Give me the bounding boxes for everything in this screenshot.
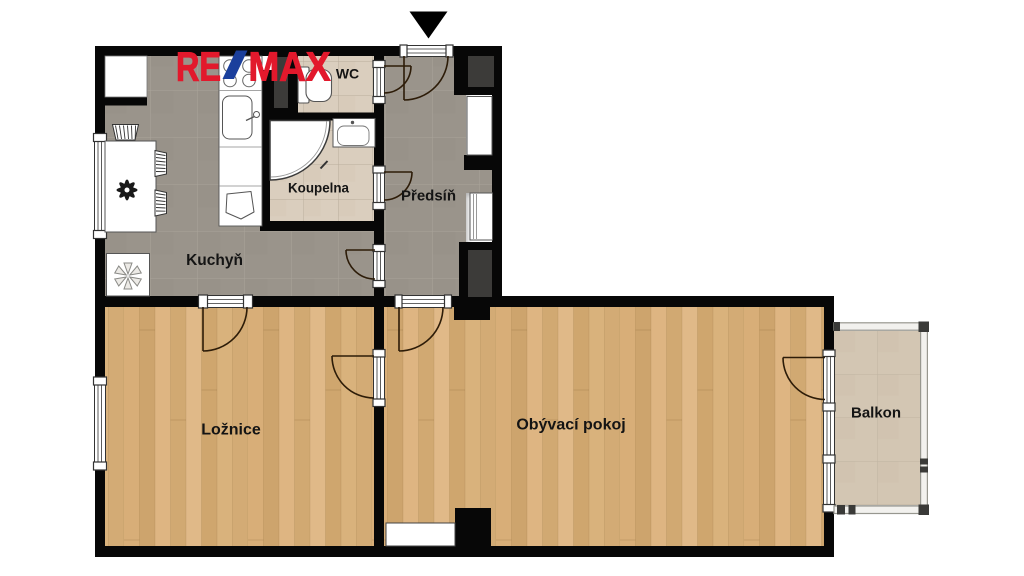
svg-text:Ložnice: Ložnice [201,422,261,439]
svg-text:WC: WC [336,66,359,82]
svg-text:Balkon: Balkon [851,405,901,422]
svg-text:Kuchyň: Kuchyň [186,252,243,269]
svg-text:MAX: MAX [249,43,331,89]
svg-text:RE: RE [176,43,221,89]
svg-text:Předsíň: Předsíň [401,188,456,205]
svg-text:Obývací pokoj: Obývací pokoj [516,417,625,434]
svg-text:Koupelna: Koupelna [288,181,350,196]
